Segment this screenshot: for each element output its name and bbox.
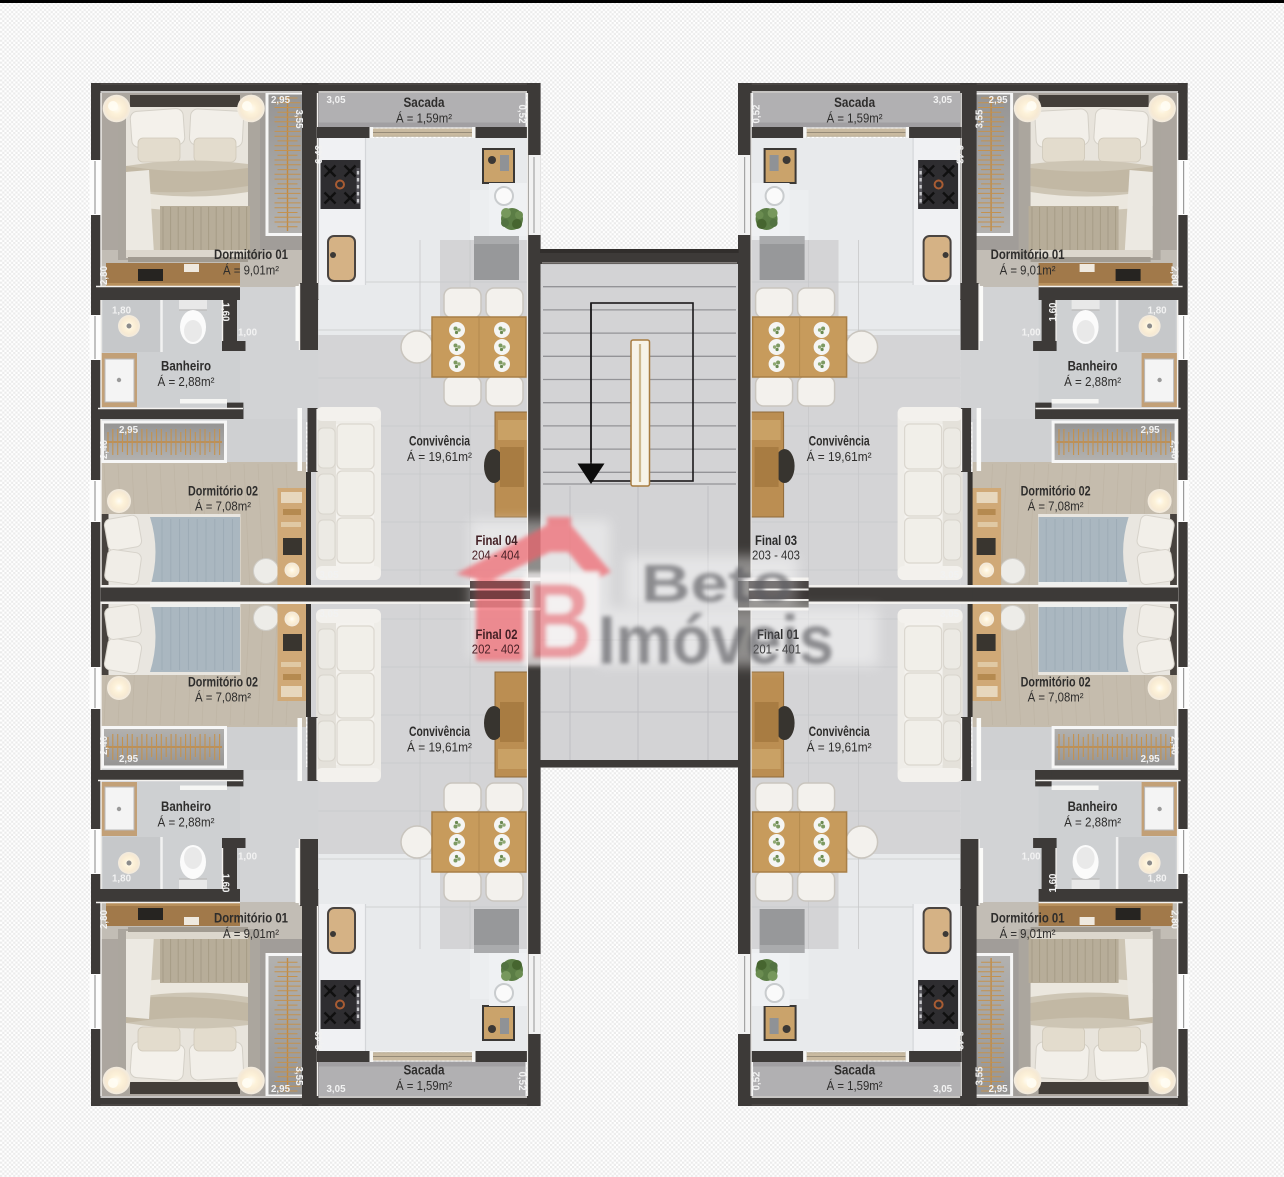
svg-text:Final 03: Final 03 (755, 532, 797, 548)
svg-text:2,80: 2,80 (99, 266, 110, 285)
svg-text:6,43: 6,43 (314, 1031, 325, 1050)
svg-text:1,60: 1,60 (1048, 873, 1059, 892)
svg-text:Sacada: Sacada (834, 95, 875, 110)
svg-text:Dormitório 01: Dormitório 01 (214, 911, 288, 926)
svg-text:6,43: 6,43 (314, 145, 325, 164)
svg-text:3,05: 3,05 (327, 95, 346, 106)
svg-text:202 - 402: 202 - 402 (472, 642, 520, 657)
svg-text:6,43: 6,43 (954, 145, 965, 164)
svg-text:Dormitório 02: Dormitório 02 (188, 674, 258, 689)
svg-text:Dormitório 02: Dormitório 02 (1021, 674, 1091, 689)
svg-text:2,95: 2,95 (989, 95, 1008, 106)
svg-text:Convivência: Convivência (409, 434, 470, 449)
svg-text:2,80: 2,80 (99, 910, 110, 929)
svg-text:2,95: 2,95 (119, 754, 138, 765)
svg-text:Á = 7,08m²: Á = 7,08m² (195, 690, 251, 705)
svg-text:3,05: 3,05 (320, 609, 339, 620)
svg-text:Á = 1,59m²: Á = 1,59m² (396, 110, 452, 125)
svg-text:Á = 9,01m²: Á = 9,01m² (1000, 926, 1056, 941)
svg-text:Dormitório 02: Dormitório 02 (188, 483, 258, 498)
svg-text:Á = 2,88m²: Á = 2,88m² (158, 814, 215, 829)
svg-text:6,43: 6,43 (954, 1031, 965, 1050)
svg-text:0,52: 0,52 (516, 105, 527, 124)
svg-text:Á = 19,61m²: Á = 19,61m² (407, 739, 472, 754)
svg-text:3,55: 3,55 (293, 1067, 304, 1086)
svg-text:Dormitório 01: Dormitório 01 (991, 247, 1065, 262)
svg-text:B: B (527, 560, 593, 681)
svg-text:3,05: 3,05 (940, 570, 959, 581)
svg-text:2,40: 2,40 (99, 736, 110, 755)
svg-text:3,05: 3,05 (320, 570, 339, 581)
svg-text:3,05: 3,05 (327, 1084, 346, 1095)
svg-text:Dormitório 02: Dormitório 02 (1021, 483, 1091, 498)
svg-text:Á = 7,08m²: Á = 7,08m² (1028, 499, 1084, 514)
svg-text:Banheiro: Banheiro (1068, 359, 1118, 374)
svg-text:2,95: 2,95 (271, 1084, 290, 1095)
svg-text:1,80: 1,80 (112, 306, 131, 317)
svg-text:Á = 19,61m²: Á = 19,61m² (407, 449, 472, 464)
svg-text:3,55: 3,55 (975, 109, 986, 128)
svg-text:2,80: 2,80 (1169, 266, 1180, 285)
svg-text:Convivência: Convivência (809, 724, 870, 739)
svg-text:1,60: 1,60 (219, 303, 230, 322)
svg-text:2,95: 2,95 (989, 1084, 1008, 1095)
svg-text:2,95: 2,95 (1141, 425, 1160, 436)
svg-text:2,80: 2,80 (1169, 910, 1180, 929)
svg-text:Sacada: Sacada (834, 1063, 875, 1078)
svg-text:1,80: 1,80 (112, 874, 131, 885)
svg-text:Dormitório 01: Dormitório 01 (991, 911, 1065, 926)
svg-text:Á = 19,61m²: Á = 19,61m² (807, 739, 872, 754)
svg-text:1,00: 1,00 (238, 852, 257, 863)
svg-text:3,55: 3,55 (293, 110, 304, 129)
svg-text:Á = 9,01m²: Á = 9,01m² (223, 262, 279, 277)
svg-text:204 - 404: 204 - 404 (472, 548, 520, 563)
svg-text:2,95: 2,95 (119, 425, 138, 436)
svg-text:Á = 1,59m²: Á = 1,59m² (827, 1078, 883, 1093)
svg-text:0,52: 0,52 (752, 1071, 763, 1090)
svg-text:Sacada: Sacada (404, 95, 445, 110)
svg-text:2,40: 2,40 (99, 440, 110, 459)
svg-text:Á = 1,59m²: Á = 1,59m² (827, 110, 883, 125)
svg-text:Convivência: Convivência (409, 724, 470, 739)
svg-text:1,80: 1,80 (1148, 874, 1167, 885)
svg-text:0,52: 0,52 (752, 104, 763, 123)
svg-text:Á = 7,08m²: Á = 7,08m² (195, 499, 251, 514)
svg-text:2,40: 2,40 (1169, 440, 1180, 459)
svg-text:Convivência: Convivência (809, 434, 870, 449)
svg-text:Sacada: Sacada (404, 1063, 445, 1078)
svg-text:1,60: 1,60 (219, 874, 230, 893)
svg-text:3,05: 3,05 (940, 609, 959, 620)
svg-text:Á = 7,08m²: Á = 7,08m² (1028, 690, 1084, 705)
svg-text:2,40: 2,40 (1169, 736, 1180, 755)
svg-text:1,00: 1,00 (238, 328, 257, 339)
svg-text:1,00: 1,00 (1022, 852, 1041, 863)
svg-text:Á = 9,01m²: Á = 9,01m² (223, 926, 279, 941)
svg-text:Imóveis: Imóveis (598, 602, 834, 679)
svg-text:Banheiro: Banheiro (1068, 799, 1118, 814)
svg-text:1,80: 1,80 (1148, 306, 1167, 317)
svg-text:2,95: 2,95 (271, 95, 290, 106)
svg-text:Á = 2,88m²: Á = 2,88m² (158, 374, 215, 389)
svg-text:Final 02: Final 02 (476, 626, 518, 642)
svg-text:Á = 2,88m²: Á = 2,88m² (1064, 814, 1121, 829)
svg-text:3,05: 3,05 (933, 1084, 952, 1095)
svg-text:Final 04: Final 04 (476, 532, 518, 548)
svg-text:1,00: 1,00 (1022, 328, 1041, 339)
svg-text:Banheiro: Banheiro (161, 359, 211, 374)
svg-text:Banheiro: Banheiro (161, 799, 211, 814)
svg-text:3,05: 3,05 (933, 95, 952, 106)
svg-text:Á = 9,01m²: Á = 9,01m² (1000, 262, 1056, 277)
svg-text:1,60: 1,60 (1048, 302, 1059, 321)
svg-text:3,55: 3,55 (975, 1066, 986, 1085)
svg-text:Á = 1,59m²: Á = 1,59m² (396, 1078, 452, 1093)
svg-text:Á = 2,88m²: Á = 2,88m² (1064, 374, 1121, 389)
svg-text:0,52: 0,52 (516, 1072, 527, 1091)
svg-text:Dormitório 01: Dormitório 01 (214, 247, 288, 262)
svg-text:2,95: 2,95 (1141, 754, 1160, 765)
svg-text:Á = 19,61m²: Á = 19,61m² (807, 449, 872, 464)
